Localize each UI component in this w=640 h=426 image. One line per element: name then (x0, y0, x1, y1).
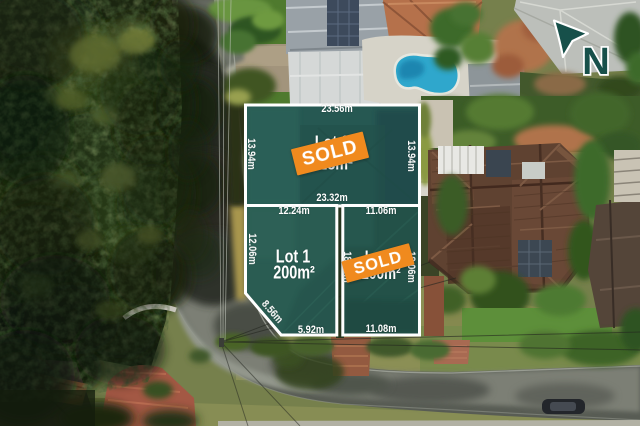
svg-text:N: N (582, 41, 609, 83)
